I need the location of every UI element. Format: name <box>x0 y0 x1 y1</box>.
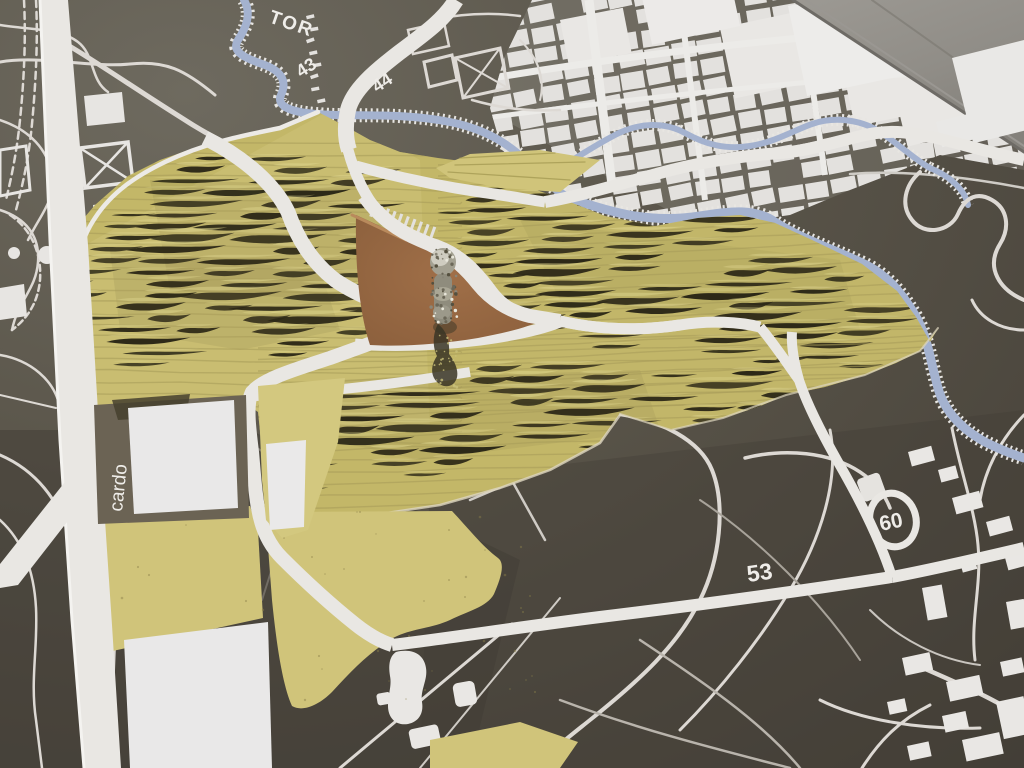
svg-text:60: 60 <box>877 509 905 536</box>
svg-text:53: 53 <box>745 558 774 587</box>
